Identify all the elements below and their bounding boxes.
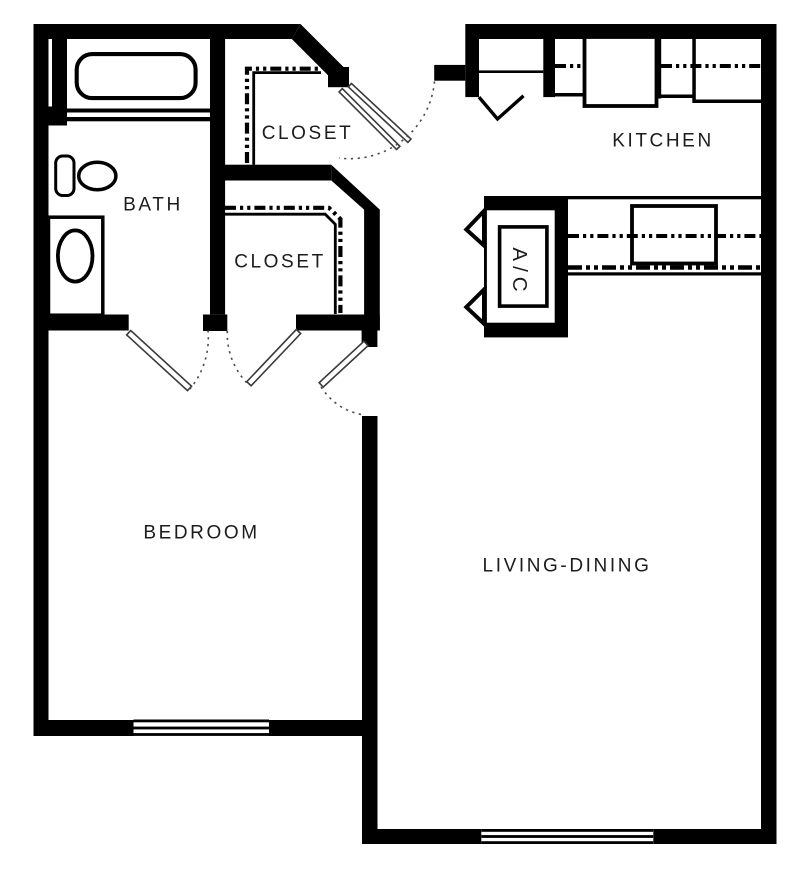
- svg-text:BATH: BATH: [123, 195, 183, 216]
- svg-text:CLOSET: CLOSET: [262, 123, 354, 144]
- svg-text:CLOSET: CLOSET: [234, 252, 326, 273]
- svg-text:LIVING-DINING: LIVING-DINING: [483, 556, 652, 577]
- svg-text:BEDROOM: BEDROOM: [143, 523, 259, 544]
- svg-text:KITCHEN: KITCHEN: [612, 131, 714, 152]
- svg-text:A/C: A/C: [508, 247, 531, 296]
